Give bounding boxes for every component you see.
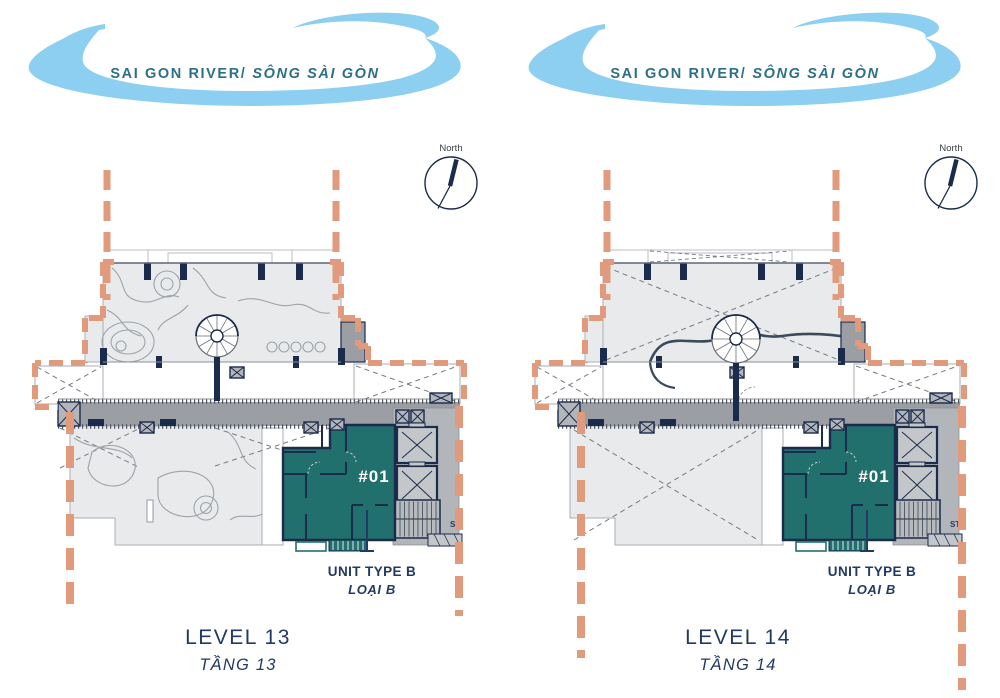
- unit-type-vi: LOẠI B: [282, 582, 462, 597]
- compass: North: [925, 143, 977, 209]
- unit-type-vi: LOẠI B: [782, 582, 962, 597]
- unit-number-label: #01: [358, 467, 389, 486]
- level-caption-vi: TẦNG 14: [638, 656, 838, 675]
- unit-01-area: #01: [283, 425, 395, 551]
- unit-01-area: #01: [783, 425, 895, 551]
- level-13-caption: LEVEL 13 TẦNG 13: [138, 626, 338, 675]
- level-caption-en: LEVEL 13: [138, 626, 338, 650]
- unit-number-label: #01: [858, 467, 889, 486]
- compass: North: [425, 143, 477, 209]
- compass-north-label: North: [439, 143, 462, 154]
- level-14-panel: SAI GON RIVER/SÔNG SÀI GÒN ST#01North UN…: [500, 0, 1000, 698]
- level-14-caption: LEVEL 14 TẦNG 14: [638, 626, 838, 675]
- unit-type-en: UNIT TYPE B: [782, 564, 962, 579]
- unit-type-en: UNIT TYPE B: [282, 564, 462, 579]
- level-caption-vi: TẦNG 13: [138, 656, 338, 675]
- level-13-panel: SAI GON RIVER/SÔNG SÀI GÒN ST#01North UN…: [0, 0, 500, 698]
- compass-north-label: North: [939, 143, 962, 154]
- level-caption-en: LEVEL 14: [638, 626, 838, 650]
- unit-type-label-13: UNIT TYPE B LOẠI B: [282, 564, 462, 597]
- unit-type-label-14: UNIT TYPE B LOẠI B: [782, 564, 962, 597]
- floorplan-brochure-page: SAI GON RIVER/SÔNG SÀI GÒN ST#01North UN…: [0, 0, 1000, 698]
